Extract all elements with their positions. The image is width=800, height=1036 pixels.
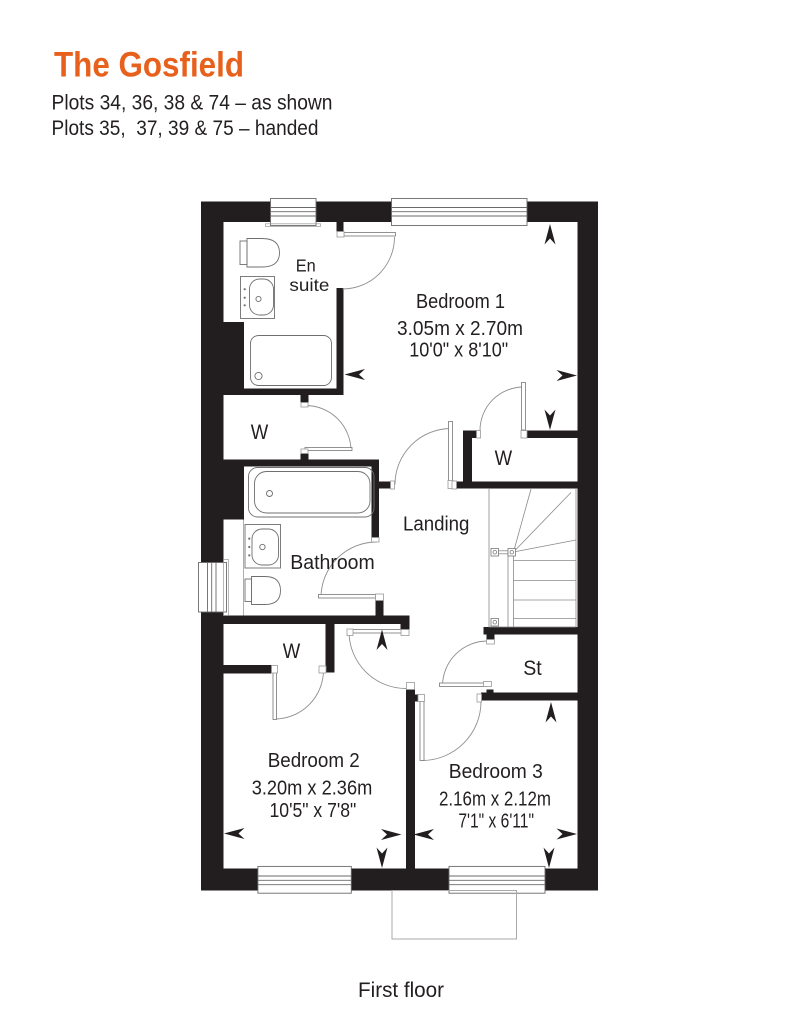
- svg-text:Bedroom 3: Bedroom 3: [449, 761, 543, 783]
- svg-text:W: W: [283, 639, 301, 663]
- svg-text:Plots 34, 36, 38 & 74 – as sho: Plots 34, 36, 38 & 74 – as shown: [52, 91, 333, 115]
- svg-text:Plots 35, 37, 39 & 75 – hande: Plots 35, 37, 39 & 75 – handed: [52, 116, 319, 140]
- svg-text:En: En: [296, 255, 316, 275]
- svg-text:Bathroom: Bathroom: [290, 552, 374, 574]
- svg-text:3.05m x 2.70m: 3.05m x 2.70m: [397, 318, 523, 340]
- svg-text:First floor: First floor: [358, 978, 444, 1002]
- svg-text:W: W: [251, 420, 269, 444]
- svg-text:Bedroom 2: Bedroom 2: [268, 750, 360, 772]
- svg-text:10'5" x 7'8": 10'5" x 7'8": [270, 800, 357, 822]
- svg-text:Landing: Landing: [403, 514, 470, 536]
- svg-text:2.16m x 2.12m: 2.16m x 2.12m: [439, 789, 551, 811]
- svg-text:St: St: [523, 656, 542, 680]
- svg-text:10'0" x 8'10": 10'0" x 8'10": [409, 339, 508, 361]
- svg-text:W: W: [495, 446, 513, 470]
- svg-text:7'1" x 6'11": 7'1" x 6'11": [458, 811, 534, 833]
- svg-text:The Gosfield: The Gosfield: [54, 46, 244, 85]
- svg-text:Bedroom 1: Bedroom 1: [416, 291, 505, 313]
- svg-text:3.20m x 2.36m: 3.20m x 2.36m: [252, 778, 373, 800]
- svg-text:suite: suite: [289, 275, 329, 295]
